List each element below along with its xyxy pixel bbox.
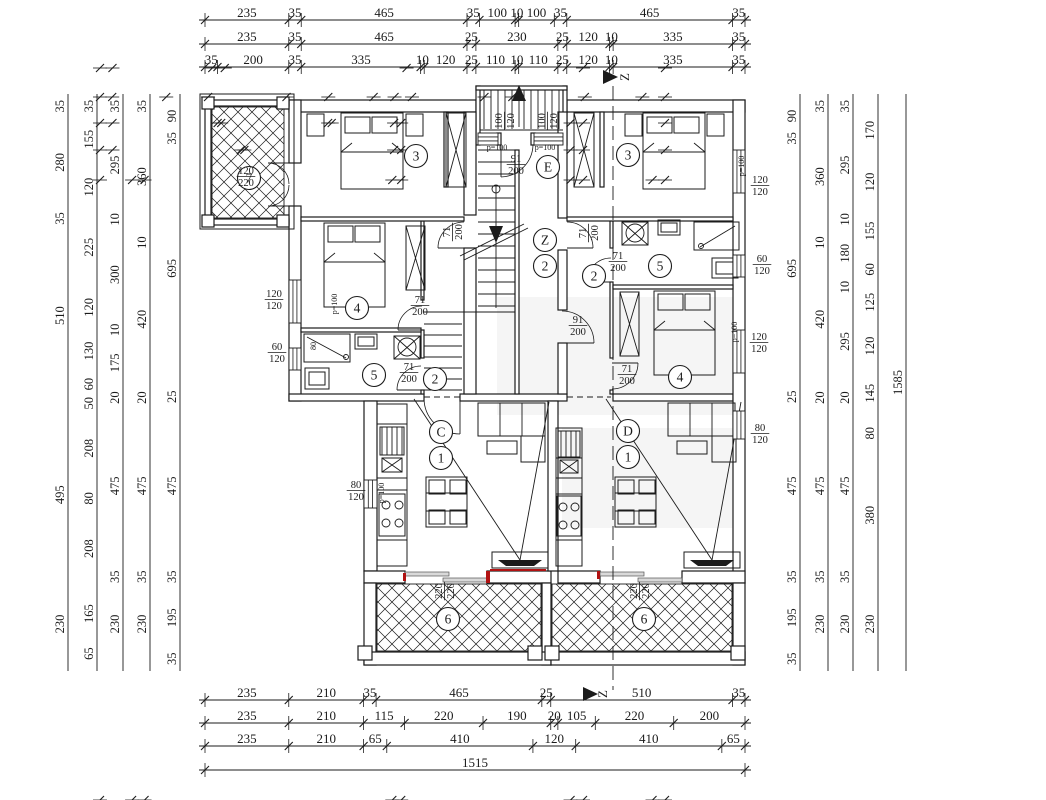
dim-label: 475	[108, 477, 122, 496]
dim-label: 65	[727, 731, 740, 746]
dim-label: 1515	[462, 755, 488, 770]
furniture-box	[694, 222, 739, 250]
wall	[358, 646, 372, 660]
dim-label: 35	[467, 5, 480, 20]
dim-label: 65	[369, 731, 382, 746]
wall	[682, 571, 745, 583]
dim-label: 35	[53, 212, 67, 225]
filled-shape	[690, 560, 734, 566]
wall	[528, 646, 542, 660]
dim-label: 65	[82, 647, 96, 660]
room-label-6: 6	[445, 612, 452, 627]
dim-label: 35	[135, 571, 149, 584]
plan-line	[694, 143, 705, 152]
dim-label: 165	[82, 604, 96, 623]
svg-text:71: 71	[442, 227, 453, 238]
furniture-box	[426, 477, 467, 527]
svg-text:200: 200	[610, 263, 626, 274]
dim-label: 120	[578, 52, 598, 67]
wall	[289, 100, 301, 163]
dim-label: 105	[567, 708, 587, 723]
size-fraction-label: 60120	[753, 254, 772, 277]
dim-label: 35	[785, 653, 799, 666]
room-label-3: 3	[625, 148, 632, 163]
dim-label: 300	[108, 265, 122, 284]
wall	[421, 390, 424, 394]
dim-label: 80	[82, 492, 96, 505]
window-icon	[364, 480, 377, 508]
svg-text:120: 120	[348, 492, 364, 503]
window-icon	[289, 348, 301, 370]
dim-label: 120	[436, 52, 456, 67]
svg-text:200: 200	[619, 376, 635, 387]
dim-label: 1585	[891, 370, 905, 395]
dim-label: 35	[165, 132, 179, 145]
svg-text:200: 200	[508, 166, 524, 177]
wall	[567, 100, 745, 112]
dim-label: 510	[632, 685, 652, 700]
dim-label: 35	[732, 29, 745, 44]
furniture-box	[309, 372, 325, 385]
parapet-label: p=100	[737, 156, 746, 177]
dim-label: 235	[237, 5, 257, 20]
dim-label: 35	[53, 100, 67, 113]
wall	[202, 97, 214, 109]
svg-text:120: 120	[754, 266, 770, 277]
room-label-C: C	[436, 425, 445, 440]
plan-line	[374, 253, 385, 262]
size-fraction-label: 71200	[411, 295, 430, 318]
dim-label: 120	[82, 178, 96, 197]
wall	[205, 100, 289, 106]
plan-line	[520, 402, 549, 560]
furniture-box	[450, 510, 466, 524]
hatched-area	[212, 107, 284, 218]
dim-label: 335	[663, 29, 683, 44]
svg-text:100: 100	[494, 113, 505, 129]
dim-label: 80	[863, 427, 877, 440]
furniture-box	[426, 493, 467, 511]
dim-label: 35	[289, 29, 302, 44]
dim-label: 235	[237, 29, 257, 44]
dim-label: 35	[82, 100, 96, 113]
size-fraction-label: 220220	[434, 582, 457, 601]
sliding-door-icon	[600, 572, 644, 576]
dim-label: 195	[165, 608, 179, 627]
dim-label: 35	[289, 5, 302, 20]
furniture-box	[429, 510, 445, 524]
svg-text:71: 71	[613, 251, 624, 262]
dim-label: 120	[578, 29, 598, 44]
page: 2353546535100101003546535235354652523025…	[0, 0, 1046, 800]
svg-text:120: 120	[752, 435, 768, 446]
svg-text:120: 120	[751, 332, 767, 343]
wall	[476, 86, 567, 90]
svg-text:200: 200	[590, 225, 601, 241]
dim-label: 60	[82, 378, 96, 391]
dim-label: 230	[507, 29, 527, 44]
dim-label: 145	[863, 384, 877, 403]
dim-label: 20	[813, 391, 827, 404]
dim-label: 110	[529, 52, 548, 67]
svg-text:120: 120	[752, 175, 768, 186]
dim-label: 100	[488, 5, 508, 20]
dim-label: 155	[82, 130, 96, 149]
dim-label: 465	[640, 5, 660, 20]
svg-text:220: 220	[629, 583, 640, 599]
size-fraction-label: 120220	[237, 166, 256, 189]
window-icon	[289, 280, 301, 323]
dim-label: 210	[316, 708, 336, 723]
dim-label: 35	[785, 132, 799, 145]
furniture-box	[450, 480, 466, 494]
dim-label: 235	[237, 708, 257, 723]
svg-text:220: 220	[238, 178, 254, 189]
size-fraction-label: 71200	[442, 223, 465, 242]
furniture-box	[707, 114, 724, 136]
room-label-2: 2	[542, 259, 549, 274]
wall	[301, 217, 464, 221]
furniture-box	[429, 480, 445, 494]
dim-label: 35	[813, 100, 827, 113]
dim-label: 35	[732, 52, 745, 67]
dim-label: 10	[135, 236, 149, 249]
parapet-label: p=100	[535, 143, 556, 152]
wall	[277, 97, 289, 109]
furniture-box	[406, 114, 423, 136]
window-icon	[733, 255, 745, 277]
room-label-D: D	[623, 424, 633, 439]
room-label-2: 2	[591, 269, 598, 284]
dim-label: 10	[838, 281, 852, 294]
furniture-box	[372, 117, 397, 133]
dim-label: 510	[53, 306, 67, 325]
dim-label: 10	[838, 213, 852, 226]
dim-label: 235	[237, 731, 257, 746]
dim-label: 420	[813, 310, 827, 329]
dim-label: 125	[863, 293, 877, 312]
section-arrow-icon	[603, 70, 618, 84]
parapet-label: p=100	[377, 483, 386, 504]
plan-circle	[395, 519, 403, 527]
furniture-box	[625, 114, 642, 136]
svg-text:120: 120	[238, 166, 254, 177]
dim-label: 230	[135, 615, 149, 634]
dim-label: 20	[135, 391, 149, 404]
svg-text:220: 220	[434, 583, 445, 599]
svg-text:80: 80	[351, 480, 362, 491]
plan-line	[341, 143, 352, 152]
dim-label: 695	[785, 259, 799, 278]
dim-label: 35	[838, 571, 852, 584]
dim-label: 495	[53, 485, 67, 504]
dim-label: 208	[82, 539, 96, 558]
wall	[600, 112, 604, 187]
dim-label: 295	[838, 156, 852, 175]
dim-label: 200	[243, 52, 263, 67]
dim-label: 120	[863, 173, 877, 192]
dim-label: 695	[165, 259, 179, 278]
size-fraction-label: 120120	[751, 175, 770, 198]
svg-text:120: 120	[269, 354, 285, 365]
wall	[558, 343, 567, 394]
svg-text:220: 220	[446, 583, 457, 599]
furniture-box	[328, 226, 353, 242]
svg-text:120: 120	[266, 301, 282, 312]
svg-text:91: 91	[573, 315, 584, 326]
dim-label: 35	[785, 571, 799, 584]
dim-label: 475	[813, 477, 827, 496]
dim-label: 210	[316, 685, 336, 700]
parapet-label: p=100	[487, 143, 508, 152]
size-fraction-label: 120120	[265, 289, 284, 312]
room-label-6: 6	[641, 612, 648, 627]
wall	[515, 150, 519, 394]
red-mark	[403, 573, 406, 581]
dim-label: 20	[108, 391, 122, 404]
dim-label: 220	[625, 708, 645, 723]
dim-label: 335	[663, 52, 683, 67]
dim-label: 220	[434, 708, 454, 723]
dim-label: 35	[732, 685, 745, 700]
dim-label: 180	[838, 244, 852, 263]
dim-label: 60	[863, 263, 877, 276]
size-fraction-label: 100120	[537, 112, 560, 131]
room-label-Z: Z	[541, 233, 549, 248]
dim-label: 410	[450, 731, 470, 746]
dim-label: 35	[108, 100, 122, 113]
furniture-box	[661, 223, 677, 232]
window-icon	[733, 411, 745, 439]
svg-text:200: 200	[412, 307, 428, 318]
svg-text:71: 71	[578, 228, 589, 239]
dim-label: 35	[108, 571, 122, 584]
size-fraction-label: 220220	[629, 582, 652, 601]
plan-line	[643, 143, 654, 152]
wall	[289, 394, 424, 401]
svg-text:80: 80	[755, 423, 766, 434]
dim-label: 190	[507, 708, 527, 723]
dim-label: 170	[863, 121, 877, 140]
sliding-door-icon	[638, 578, 682, 582]
dim-label: 208	[82, 439, 96, 458]
dim-label: 420	[135, 310, 149, 329]
furniture-box	[521, 436, 545, 462]
parapet-label: 80	[309, 342, 318, 350]
furniture-box	[716, 262, 734, 274]
size-fraction-label: 91200	[507, 154, 526, 177]
plan-circle	[382, 519, 390, 527]
size-fraction-label: 80120	[347, 480, 366, 503]
size-fraction-label: 80120	[751, 423, 770, 446]
dim-label: 230	[53, 615, 67, 634]
size-fraction-label: 71200	[400, 362, 419, 385]
dim-label: 50	[82, 397, 96, 410]
wall	[464, 248, 476, 394]
svg-text:71: 71	[415, 295, 426, 306]
dim-label: 35	[289, 52, 302, 67]
furniture-box	[487, 441, 517, 454]
wall	[545, 646, 559, 660]
parapet-label: p=100	[330, 294, 339, 315]
dim-label: 475	[838, 477, 852, 496]
room-label-5: 5	[657, 259, 664, 274]
dim-label: 100	[527, 5, 547, 20]
dim-label: 195	[785, 608, 799, 627]
dim-label: 475	[785, 477, 799, 496]
dim-label: 10	[108, 324, 122, 337]
furniture-box	[355, 226, 380, 242]
wall	[551, 652, 745, 665]
floor-plan-svg: 2353546535100101003546535235354652523025…	[0, 0, 1046, 800]
dim-label: 225	[82, 238, 96, 257]
room-label-E: E	[544, 160, 552, 175]
section-label: Z	[617, 73, 632, 81]
svg-text:200: 200	[401, 374, 417, 385]
red-mark	[597, 571, 600, 579]
dim-label: 25	[785, 391, 799, 404]
section-label: Z	[595, 690, 610, 698]
dim-label: 230	[863, 615, 877, 634]
wall	[277, 215, 289, 227]
wall	[205, 100, 211, 225]
dim-label: 475	[165, 477, 179, 496]
dim-label: 410	[639, 731, 659, 746]
svg-text:60: 60	[757, 254, 768, 265]
dim-label: 35	[813, 571, 827, 584]
furniture-box	[358, 337, 374, 346]
room-label-1: 1	[625, 450, 632, 465]
svg-text:200: 200	[570, 327, 586, 338]
svg-text:120: 120	[266, 289, 282, 300]
dim-label: 475	[135, 477, 149, 496]
filled-shape	[498, 560, 542, 566]
room-label-4: 4	[354, 301, 361, 316]
room-label-2: 2	[432, 372, 439, 387]
wall	[460, 394, 567, 401]
wall	[289, 100, 476, 112]
dim-label: 295	[838, 332, 852, 351]
size-fraction-label: 100120	[494, 112, 517, 131]
dim-label: 210	[316, 731, 336, 746]
dim-label: 230	[838, 615, 852, 634]
wall	[421, 330, 424, 358]
svg-text:120: 120	[751, 344, 767, 355]
plan-line	[700, 226, 735, 247]
dim-label: 35	[838, 100, 852, 113]
parapet-label: p=100	[730, 322, 739, 343]
svg-text:120: 120	[506, 113, 517, 129]
dim-label: 465	[449, 685, 469, 700]
dim-label: 155	[863, 222, 877, 241]
room-label-1: 1	[438, 451, 445, 466]
dim-label: 35	[732, 5, 745, 20]
sliding-door-icon	[405, 572, 449, 576]
dim-label: 35	[363, 685, 376, 700]
dim-label: 175	[108, 354, 122, 373]
red-mark	[490, 569, 546, 571]
wall	[558, 250, 567, 310]
dim-label: 235	[237, 685, 257, 700]
room-label-5: 5	[371, 368, 378, 383]
dim-label: 280	[53, 153, 67, 172]
dim-label: 10	[108, 213, 122, 226]
room-label-3: 3	[413, 149, 420, 164]
dim-label: 35	[165, 653, 179, 666]
svg-text:220: 220	[641, 583, 652, 599]
wall	[558, 571, 600, 583]
watermark-block	[562, 428, 742, 528]
wall	[487, 571, 551, 583]
svg-text:100: 100	[537, 113, 548, 129]
size-fraction-label: 60120	[268, 342, 287, 365]
dim-label: 120	[863, 337, 877, 356]
dim-label: 230	[108, 615, 122, 634]
svg-text:71: 71	[622, 364, 633, 375]
wall	[202, 215, 214, 227]
size-fraction-label: 120120	[750, 332, 769, 355]
furniture-box	[674, 117, 699, 133]
wall	[567, 217, 733, 221]
dim-label: 35	[135, 100, 149, 113]
dim-label: 130	[82, 342, 96, 361]
wall	[205, 219, 289, 225]
dim-label: 35	[165, 571, 179, 584]
svg-text:200: 200	[454, 224, 465, 240]
dim-label: 115	[375, 708, 394, 723]
dim-label: 120	[545, 731, 565, 746]
dim-label: 360	[813, 167, 827, 186]
dim-label: 335	[351, 52, 371, 67]
dim-label: 465	[374, 5, 394, 20]
plan-circle	[395, 501, 403, 509]
dim-label: 110	[486, 52, 505, 67]
dim-label: 465	[374, 29, 394, 44]
dim-label: 380	[863, 506, 877, 525]
dim-label: 295	[108, 156, 122, 175]
svg-text:71: 71	[404, 362, 415, 373]
dim-label: 90	[785, 110, 799, 123]
dim-label: 20	[548, 708, 561, 723]
red-mark	[486, 571, 490, 583]
svg-text:91: 91	[511, 154, 522, 165]
wall	[613, 394, 733, 401]
furniture-box	[307, 114, 324, 136]
room-label-4: 4	[677, 370, 684, 385]
wall	[613, 285, 733, 289]
wall	[364, 571, 405, 583]
dim-label: 200	[700, 708, 720, 723]
dim-label: 230	[813, 615, 827, 634]
furniture-box	[345, 117, 370, 133]
plan-line	[324, 253, 335, 262]
size-fraction-label: 71200	[609, 251, 628, 274]
sliding-door-icon	[443, 578, 487, 582]
dim-label: 35	[554, 5, 567, 20]
dim-label: 25	[165, 391, 179, 404]
dim-label: 10	[813, 236, 827, 249]
svg-text:120: 120	[549, 113, 560, 129]
wall	[731, 646, 745, 660]
svg-text:120: 120	[752, 187, 768, 198]
dim-label: 90	[165, 110, 179, 123]
dim-label: 120	[82, 298, 96, 317]
svg-text:60: 60	[272, 342, 283, 353]
dim-label: 20	[838, 391, 852, 404]
wall	[364, 652, 551, 665]
